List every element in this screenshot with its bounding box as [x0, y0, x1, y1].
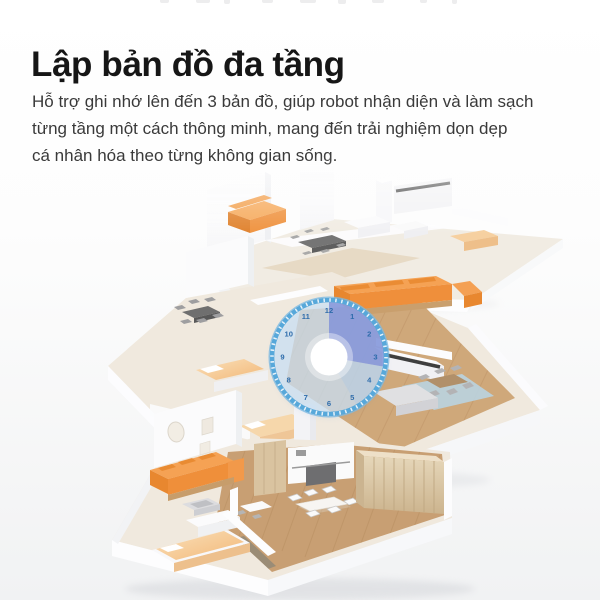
clock-number: 7 [304, 393, 308, 402]
schedule-clock: 12 1 2 3 4 5 6 7 8 9 10 11 [269, 297, 389, 417]
clock-number: 6 [327, 399, 331, 408]
clock-number: 9 [280, 353, 284, 362]
kitchen-unit [376, 176, 452, 226]
clock-center [311, 339, 348, 376]
clock-number: 2 [367, 329, 371, 338]
clock-number: 12 [325, 306, 333, 315]
clock-number: 3 [373, 353, 377, 362]
multi-floor-map-illustration: 12 1 2 3 4 5 6 7 8 9 10 11 [0, 0, 600, 600]
clock-number: 11 [302, 312, 311, 321]
clock-number: 8 [287, 376, 291, 385]
feature-section: Lập bản đồ đa tầng Hỗ trợ ghi nhớ lên đế… [0, 0, 600, 600]
clock-number: 10 [284, 329, 292, 338]
